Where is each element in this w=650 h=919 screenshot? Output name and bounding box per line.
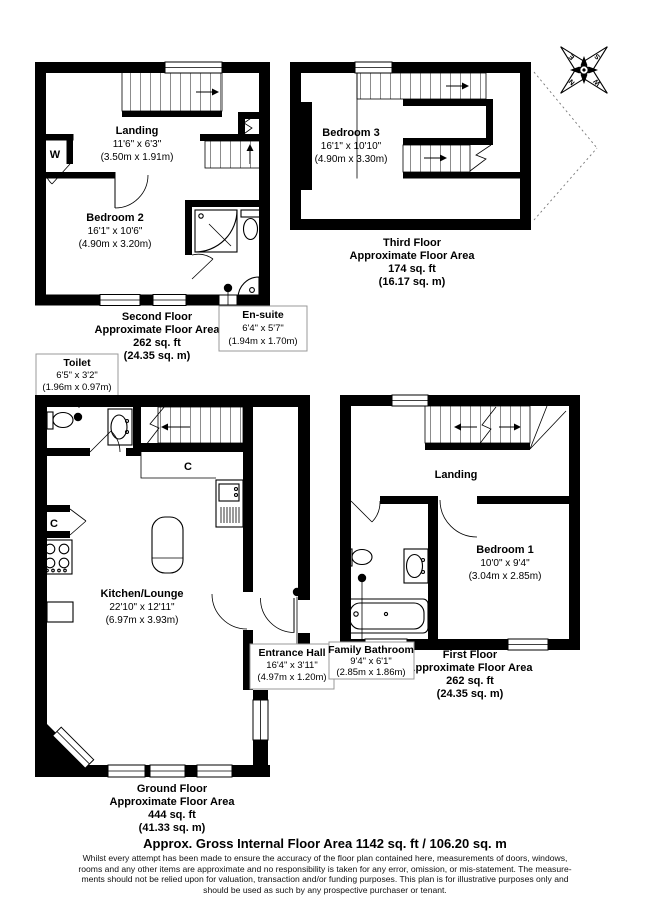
projection-line <box>534 72 597 148</box>
svg-text:Third Floor: Third Floor <box>383 237 442 249</box>
disclaimer-line: ments should not be relied upon for valu… <box>25 874 625 885</box>
svg-text:10'0" x 9'4": 10'0" x 9'4" <box>480 558 530 569</box>
disclaimer-line: should be used as such by any prospectiv… <box>25 885 625 896</box>
door-leaf <box>70 521 86 535</box>
svg-text:16'4" x 3'11": 16'4" x 3'11" <box>266 660 317 671</box>
svg-text:262 sq. ft: 262 sq. ft <box>446 675 494 687</box>
ground-floor-title: Ground Floor Approximate Floor Area 444 … <box>110 783 236 834</box>
svg-text:(4.90m x 3.20m): (4.90m x 3.20m) <box>79 239 152 250</box>
svg-text:(24.35 sq. m): (24.35 sq. m) <box>124 350 191 362</box>
svg-text:Kitchen/Lounge: Kitchen/Lounge <box>100 588 183 600</box>
svg-text:(1.96m x 0.97m): (1.96m x 0.97m) <box>42 382 111 393</box>
svg-text:Approximate Floor Area: Approximate Floor Area <box>110 796 236 808</box>
bedroom2-label: Bedroom 2 16'1" x 10'6" (4.90m x 3.20m) <box>79 212 152 250</box>
svg-text:(4.90m x 3.30m): (4.90m x 3.30m) <box>315 154 388 165</box>
third-floor-title: Third Floor Approximate Floor Area 174 s… <box>350 237 476 288</box>
svg-text:Family Bathroom: Family Bathroom <box>328 644 414 656</box>
svg-text:(3.04m x 2.85m): (3.04m x 2.85m) <box>469 571 542 582</box>
svg-text:Entrance Hall: Entrance Hall <box>258 647 325 659</box>
disclaimer-text: Whilst every attempt has been made to en… <box>25 853 625 895</box>
svg-text:Landing: Landing <box>116 125 159 137</box>
svg-text:Ground Floor: Ground Floor <box>137 783 208 795</box>
leader-dot <box>293 588 301 596</box>
cupboard-recess <box>141 452 216 478</box>
leader-dot <box>224 284 232 292</box>
cupboard-marker: C <box>50 518 58 530</box>
svg-text:(4.97m x 1.20m): (4.97m x 1.20m) <box>257 672 326 683</box>
svg-text:Bedroom 3: Bedroom 3 <box>322 127 379 139</box>
floorplan-canvas: W <box>0 0 650 919</box>
ground-toilet-room <box>47 409 132 452</box>
svg-text:First Floor: First Floor <box>443 649 498 661</box>
door-arc <box>212 594 247 629</box>
compass-icon: N E S W <box>537 23 630 116</box>
ground-floor-stairs <box>146 406 243 445</box>
svg-text:Approximate Floor Area: Approximate Floor Area <box>408 662 534 674</box>
family-bathroom-callout: Family Bathroom 9'4" x 6'1" (2.85m x 1.8… <box>328 642 414 679</box>
svg-text:6'4" x 5'7": 6'4" x 5'7" <box>242 323 284 334</box>
svg-text:(1.94m x 1.70m): (1.94m x 1.70m) <box>228 336 297 347</box>
floorplan-page: { "page": { "title": "Approx. Gross Inte… <box>0 0 650 919</box>
svg-text:174 sq. ft: 174 sq. ft <box>388 263 436 275</box>
counter-unit <box>47 602 73 622</box>
kitchen-label: Kitchen/Lounge 22'10" x 12'11" (6.97m x … <box>100 588 183 626</box>
svg-text:Approximate Floor Area: Approximate Floor Area <box>350 250 476 262</box>
svg-text:Approximate Floor Area: Approximate Floor Area <box>95 324 221 336</box>
svg-text:16'1" x 10'6": 16'1" x 10'6" <box>88 226 143 237</box>
ground-floor-plan: C C <box>35 395 310 777</box>
svg-text:Bedroom 1: Bedroom 1 <box>476 544 533 556</box>
wardrobe-marker: W <box>50 149 61 161</box>
svg-text:En-suite: En-suite <box>242 309 284 321</box>
kitchen-island <box>152 517 183 573</box>
bedroom3-label: Bedroom 3 16'1" x 10'10" (4.90m x 3.30m) <box>315 127 388 165</box>
svg-text:(3.50m x 1.91m): (3.50m x 1.91m) <box>101 152 174 163</box>
svg-text:6'5" x 3'2": 6'5" x 3'2" <box>56 370 98 381</box>
third-floor-plan: Bedroom 3 16'1" x 10'10" (4.90m x 3.30m) <box>296 62 526 225</box>
ground-floor-walls <box>35 395 310 777</box>
svg-text:Bedroom 2: Bedroom 2 <box>86 212 143 224</box>
chimney-breast <box>296 102 312 190</box>
first-floor-title: First Floor Approximate Floor Area 262 s… <box>408 649 534 700</box>
svg-text:(6.97m x 3.93m): (6.97m x 3.93m) <box>106 615 179 626</box>
leader-dot <box>358 574 366 582</box>
svg-text:(16.17 sq. m): (16.17 sq. m) <box>379 276 446 288</box>
door-arc <box>260 598 294 633</box>
basin-vanity-icon <box>108 409 132 445</box>
projection-line <box>534 148 597 220</box>
disclaimer-line: rooms and any other items are approximat… <box>25 864 625 875</box>
kitchen-sink-unit-icon <box>216 480 243 527</box>
svg-text:262 sq. ft: 262 sq. ft <box>133 337 181 349</box>
svg-text:(24.35 sq. m): (24.35 sq. m) <box>437 688 504 700</box>
ensuite-callout: En-suite 6'4" x 5'7" (1.94m x 1.70m) <box>219 306 307 351</box>
first-floor-plan: Landing Bedroom 1 10'0" x 9'4" (3.04m x … <box>346 395 575 650</box>
front-door <box>260 588 301 633</box>
gross-area-title: Approx. Gross Internal Floor Area 1142 s… <box>0 836 650 851</box>
landing1-label: Landing <box>435 469 478 481</box>
svg-text:Toilet: Toilet <box>63 357 91 369</box>
leader-dot <box>74 413 82 421</box>
svg-text:Second Floor: Second Floor <box>122 311 193 323</box>
svg-text:444 sq. ft: 444 sq. ft <box>148 809 196 821</box>
svg-text:9'4" x 6'1": 9'4" x 6'1" <box>350 656 392 667</box>
door-leaf <box>70 509 86 521</box>
second-floor-plan: W <box>41 62 265 306</box>
disclaimer-line: Whilst every attempt has been made to en… <box>25 853 625 864</box>
svg-text:16'1" x 10'10": 16'1" x 10'10" <box>321 141 382 152</box>
svg-text:11'6" x 6'3": 11'6" x 6'3" <box>113 139 162 150</box>
svg-text:22'10" x 12'11": 22'10" x 12'11" <box>109 602 175 613</box>
svg-text:(41.33 sq. m): (41.33 sq. m) <box>139 822 206 834</box>
compass-points <box>537 23 630 116</box>
svg-text:(2.85m x 1.86m): (2.85m x 1.86m) <box>336 667 405 678</box>
toilet-icon <box>47 412 73 429</box>
cupboard-marker: C <box>184 461 192 473</box>
